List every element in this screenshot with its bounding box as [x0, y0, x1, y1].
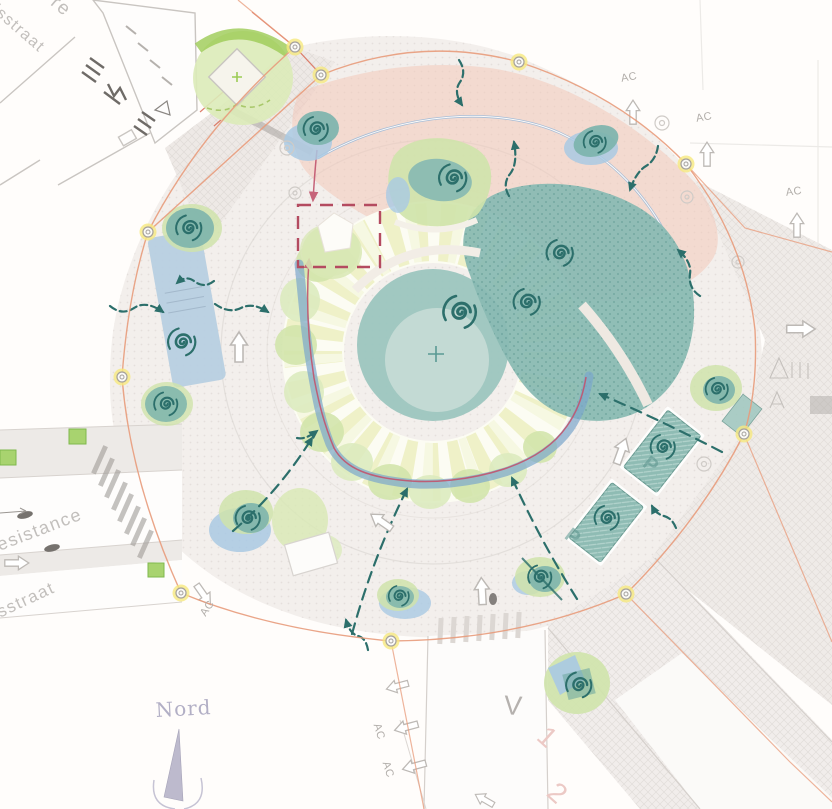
boundary-node [287, 39, 304, 56]
boundary-node [114, 369, 131, 386]
corner-tree-pergola [193, 31, 293, 125]
road-marking-v: V [503, 690, 523, 722]
landscape-plan: re dsstraat esistance sstraat Nord AC AC… [0, 0, 832, 809]
tree [544, 652, 610, 714]
boundary-node [383, 633, 400, 650]
boundary-node [736, 426, 753, 443]
tree [690, 365, 742, 411]
boundary-node [173, 585, 190, 602]
tree [141, 382, 193, 426]
ac-label: AC [785, 185, 803, 199]
boundary-node [511, 54, 528, 71]
bollard-glyph [489, 593, 497, 605]
building-block [810, 396, 832, 414]
boundary-node [313, 67, 330, 84]
boundary-node [678, 156, 695, 173]
boundary-node [618, 586, 635, 603]
compass-label: Nord [155, 695, 212, 722]
boundary-node [140, 224, 157, 241]
